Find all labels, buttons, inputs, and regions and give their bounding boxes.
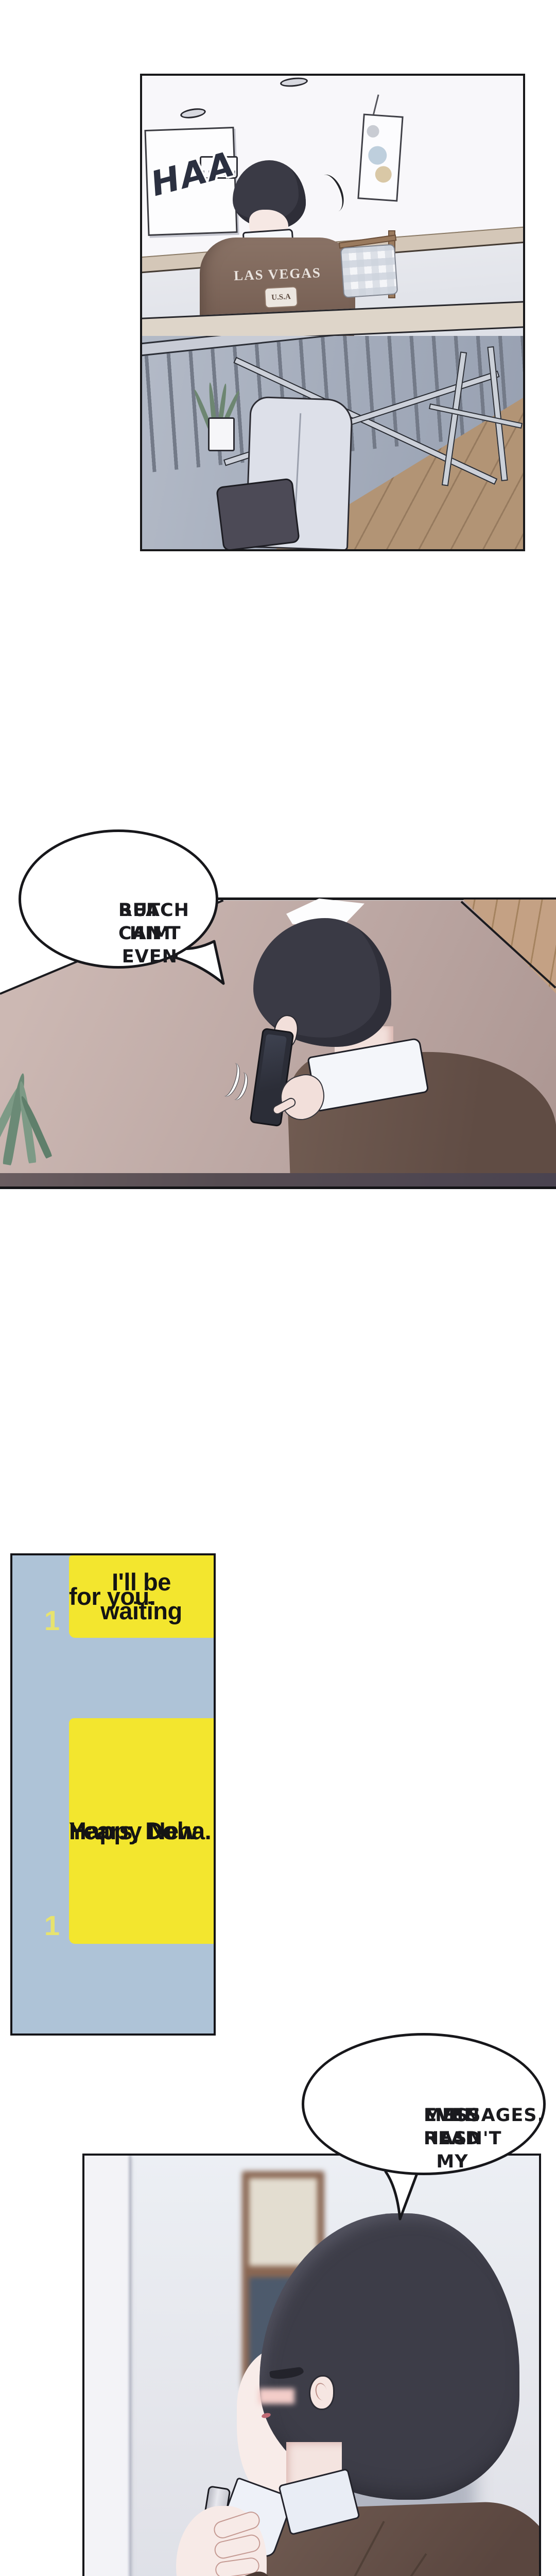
character-blush	[258, 2388, 294, 2404]
chat-message-line: Years, Doha.	[69, 1817, 211, 1845]
unread-count-badge: 1	[44, 1605, 60, 1637]
wall-poster	[357, 113, 403, 201]
sweater-badge: U.S.A	[264, 286, 298, 308]
poster-circle	[368, 145, 387, 165]
panel-bottom-border	[0, 1187, 556, 1189]
plant-pot	[208, 417, 235, 451]
speech-line: MESSAGES.	[424, 2104, 545, 2127]
desk-front-edge	[0, 1173, 556, 1187]
speech-line: REACH HIM.	[118, 899, 189, 945]
speech-bubble: BUT I CAN'T EVEN REACH HIM.	[19, 829, 218, 969]
panel-chat-screenshot: I'll be waiting for you. 1 Happy New Yea…	[10, 1553, 216, 2036]
checkered-bag	[340, 244, 398, 298]
under-table-area	[142, 336, 523, 549]
poster-circle	[375, 165, 392, 183]
character-ear	[309, 2375, 335, 2410]
window-pane	[249, 2178, 317, 2266]
chat-message-bubble: Happy New Years, Doha.	[69, 1718, 214, 1944]
panel-phone-scene: EGAS A	[82, 2154, 541, 2576]
poster-circle	[367, 125, 380, 138]
chat-message-line: for you.	[69, 1582, 155, 1611]
webtoon-page: HAA LAS VEGAS U.S.A	[0, 0, 556, 2576]
wall-corner	[129, 2156, 131, 2576]
unread-count-badge: 1	[44, 1910, 60, 1942]
chat-message-bubble: I'll be waiting for you.	[69, 1555, 214, 1638]
ear-line	[314, 2382, 329, 2401]
panel-cafe-scene: HAA LAS VEGAS U.S.A	[140, 74, 525, 551]
bag-on-floor	[216, 478, 300, 549]
speech-bubble: HE HASN'T EVEN READ MY MESSAGES.	[302, 2033, 546, 2175]
wall	[84, 2156, 130, 2576]
